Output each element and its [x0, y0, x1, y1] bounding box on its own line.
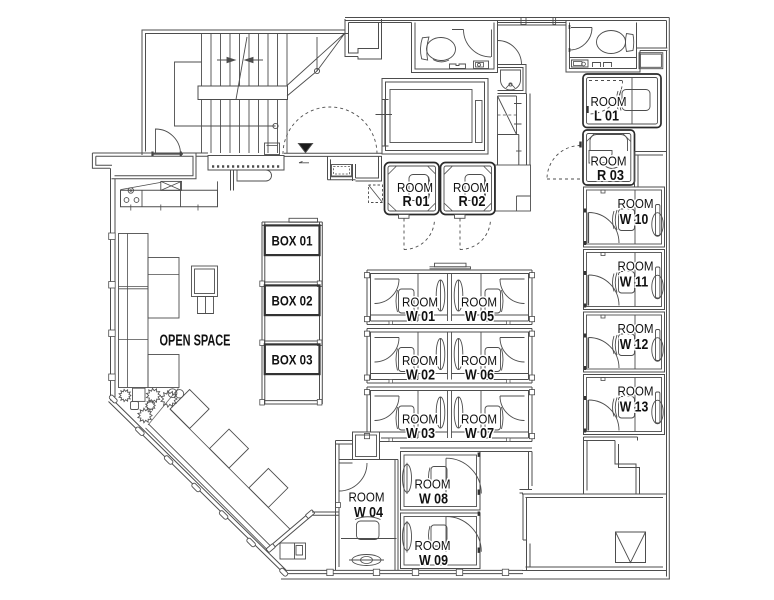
svg-text:W 07: W 07 — [465, 426, 494, 442]
svg-text:W 01: W 01 — [406, 309, 435, 325]
svg-text:ROOM: ROOM — [618, 385, 654, 399]
svg-text:W 03: W 03 — [406, 426, 435, 442]
svg-text:W 12: W 12 — [620, 337, 649, 353]
svg-text:ROOM: ROOM — [618, 260, 654, 274]
svg-text:ROOM: ROOM — [397, 181, 433, 195]
svg-text:W 13: W 13 — [620, 400, 649, 416]
svg-text:L 01: L 01 — [594, 109, 619, 125]
svg-text:ROOM: ROOM — [415, 478, 451, 492]
svg-text:ROOM: ROOM — [415, 539, 451, 553]
svg-text:W 10: W 10 — [620, 212, 649, 228]
svg-text:ROOM: ROOM — [461, 296, 497, 310]
svg-text:ROOM: ROOM — [349, 491, 385, 505]
svg-text:W 09: W 09 — [419, 553, 448, 569]
svg-text:BOX 03: BOX 03 — [272, 352, 313, 368]
svg-text:ROOM: ROOM — [591, 155, 627, 169]
svg-text:ROOM: ROOM — [453, 181, 489, 195]
svg-text:BOX 01: BOX 01 — [272, 233, 313, 249]
svg-text:ROOM: ROOM — [618, 322, 654, 336]
svg-text:R 02: R 02 — [459, 194, 486, 210]
svg-text:ROOM: ROOM — [402, 413, 438, 427]
svg-text:ROOM: ROOM — [402, 354, 438, 368]
svg-text:BOX 02: BOX 02 — [272, 293, 313, 309]
svg-text:ROOM: ROOM — [461, 354, 497, 368]
svg-text:OPEN SPACE: OPEN SPACE — [160, 332, 231, 349]
svg-text:R 01: R 01 — [403, 194, 430, 210]
svg-text:ROOM: ROOM — [591, 95, 627, 109]
svg-text:ROOM: ROOM — [461, 413, 497, 427]
svg-text:W 02: W 02 — [406, 368, 435, 384]
svg-text:R 03: R 03 — [597, 168, 624, 184]
svg-text:W 06: W 06 — [465, 368, 494, 384]
svg-text:ROOM: ROOM — [618, 197, 654, 211]
svg-text:W 11: W 11 — [620, 275, 649, 291]
svg-text:W 08: W 08 — [419, 492, 448, 508]
svg-text:W 05: W 05 — [465, 309, 494, 325]
svg-text:ROOM: ROOM — [402, 296, 438, 310]
